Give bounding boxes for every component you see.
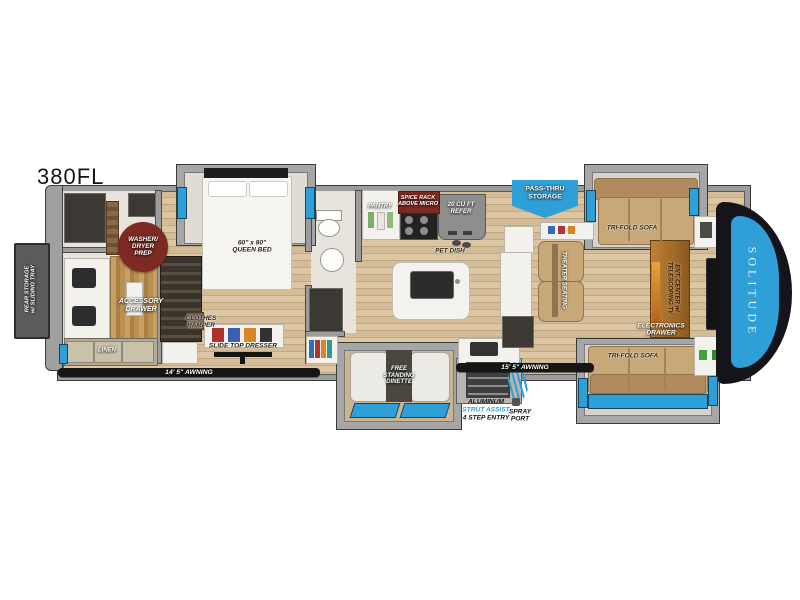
toilet-bowl <box>318 219 340 237</box>
burner-1 <box>405 216 413 224</box>
sofa-slide-top-window-left <box>586 190 596 222</box>
entry-cabinet <box>504 226 534 254</box>
fireplace <box>652 262 660 324</box>
step-tread-4 <box>468 393 508 395</box>
sofa-slide-bottom-accent-floor <box>588 394 708 409</box>
rear-corner-window <box>59 344 68 364</box>
dresser-item-red <box>212 328 224 342</box>
awning-bar-right <box>456 363 594 372</box>
closet-item-3 <box>321 340 326 358</box>
vanity-sink-1 <box>72 268 96 288</box>
pet-dish-bowl-2 <box>462 242 471 248</box>
tri-fold-sofa-top-seat <box>598 197 694 245</box>
island-sink <box>410 271 454 299</box>
rear-storage-tray <box>14 243 50 339</box>
wall-bath-kitchen <box>356 191 361 261</box>
vanity-sink-2 <box>72 306 96 326</box>
spray-port-label: SPRAY PORT <box>509 409 531 424</box>
dinette-chair-left <box>350 352 390 402</box>
sofa-slide-bottom-window-right <box>708 376 718 406</box>
tall-cabinet <box>500 252 532 318</box>
pet-dish-bowl-1 <box>452 240 461 246</box>
theater-console <box>552 244 558 317</box>
refer-handle-1 <box>448 231 457 235</box>
dinette-chair-right <box>410 352 450 402</box>
entry-label-line3: 4 STEP ENTRY <box>463 414 510 421</box>
sofa-top-cushion-line-1 <box>628 199 630 241</box>
pantry-item-1 <box>368 212 374 228</box>
sofa-bottom-cushion-line-1 <box>628 348 630 390</box>
bedroom-tv-stand <box>240 357 245 364</box>
shelf-item-2 <box>558 226 565 234</box>
front-cabinet-top-slot <box>700 222 712 238</box>
dresser-item-blue <box>228 328 240 342</box>
dresser-item-orange <box>244 328 256 342</box>
spray-port-nozzle-icon <box>512 398 520 406</box>
shelf-item-1 <box>548 226 555 234</box>
refer-handle-2 <box>463 231 472 235</box>
spice-rack <box>398 191 440 214</box>
electronics-panel-green-1 <box>699 350 707 360</box>
cabinet-right <box>122 341 154 363</box>
tri-fold-sofa-bottom-back <box>590 374 706 394</box>
clothes-hamper <box>186 312 204 330</box>
dinette-floor-mat-left <box>350 403 401 418</box>
washer-dryer-badge <box>118 222 168 272</box>
sofa-slide-top-window-right <box>689 188 699 216</box>
rear-shower <box>64 193 106 243</box>
closet-item-1 <box>309 340 314 358</box>
burner-4 <box>420 227 428 235</box>
sofa-slide-bottom-window-left <box>578 378 588 408</box>
sofa-top-cushion-line-2 <box>660 199 662 241</box>
headboard <box>204 168 288 178</box>
sofa-bottom-cushion-line-2 <box>664 348 666 390</box>
bedroom-nightstand <box>162 342 198 364</box>
cabinet-left <box>66 341 94 363</box>
pantry-item-2 <box>377 212 385 230</box>
step-tread-3 <box>468 385 508 387</box>
counter-tray <box>126 282 143 316</box>
dinette-table <box>386 350 412 402</box>
floorplan-canvas: 380FL REAR STORAGE w/ SLIDING TRAY WASHE… <box>0 0 800 600</box>
dinette-floor-mat-right <box>400 403 451 418</box>
closet-item-4 <box>327 340 332 358</box>
entry-label-line2: STRUT ASSIST <box>462 406 509 413</box>
entry-bench <box>502 316 534 348</box>
pillow-left <box>208 181 247 197</box>
bedroom-window-right <box>305 187 315 219</box>
awning-bar-left <box>58 368 320 377</box>
pantry-item-3 <box>387 212 393 228</box>
step-tread-2 <box>468 377 508 379</box>
mid-bath-shower <box>309 288 343 332</box>
rear-cabinet <box>128 193 156 217</box>
dresser-item-dark <box>260 328 272 342</box>
burner-2 <box>420 216 428 224</box>
refrigerator <box>438 194 486 240</box>
island-faucet <box>455 279 460 284</box>
bedroom-window-left <box>177 187 187 219</box>
burner-3 <box>405 227 413 235</box>
bath-sink <box>320 248 344 272</box>
entry-counter-sink <box>470 342 498 356</box>
closet-item-2 <box>315 340 320 358</box>
floorplan-model-label: 380FL <box>37 166 104 188</box>
theater-seat-1 <box>538 241 584 282</box>
linen-cabinet <box>94 341 122 363</box>
pillow-right <box>249 181 288 197</box>
shelf-item-3 <box>568 226 575 234</box>
theater-seat-2 <box>538 281 584 322</box>
